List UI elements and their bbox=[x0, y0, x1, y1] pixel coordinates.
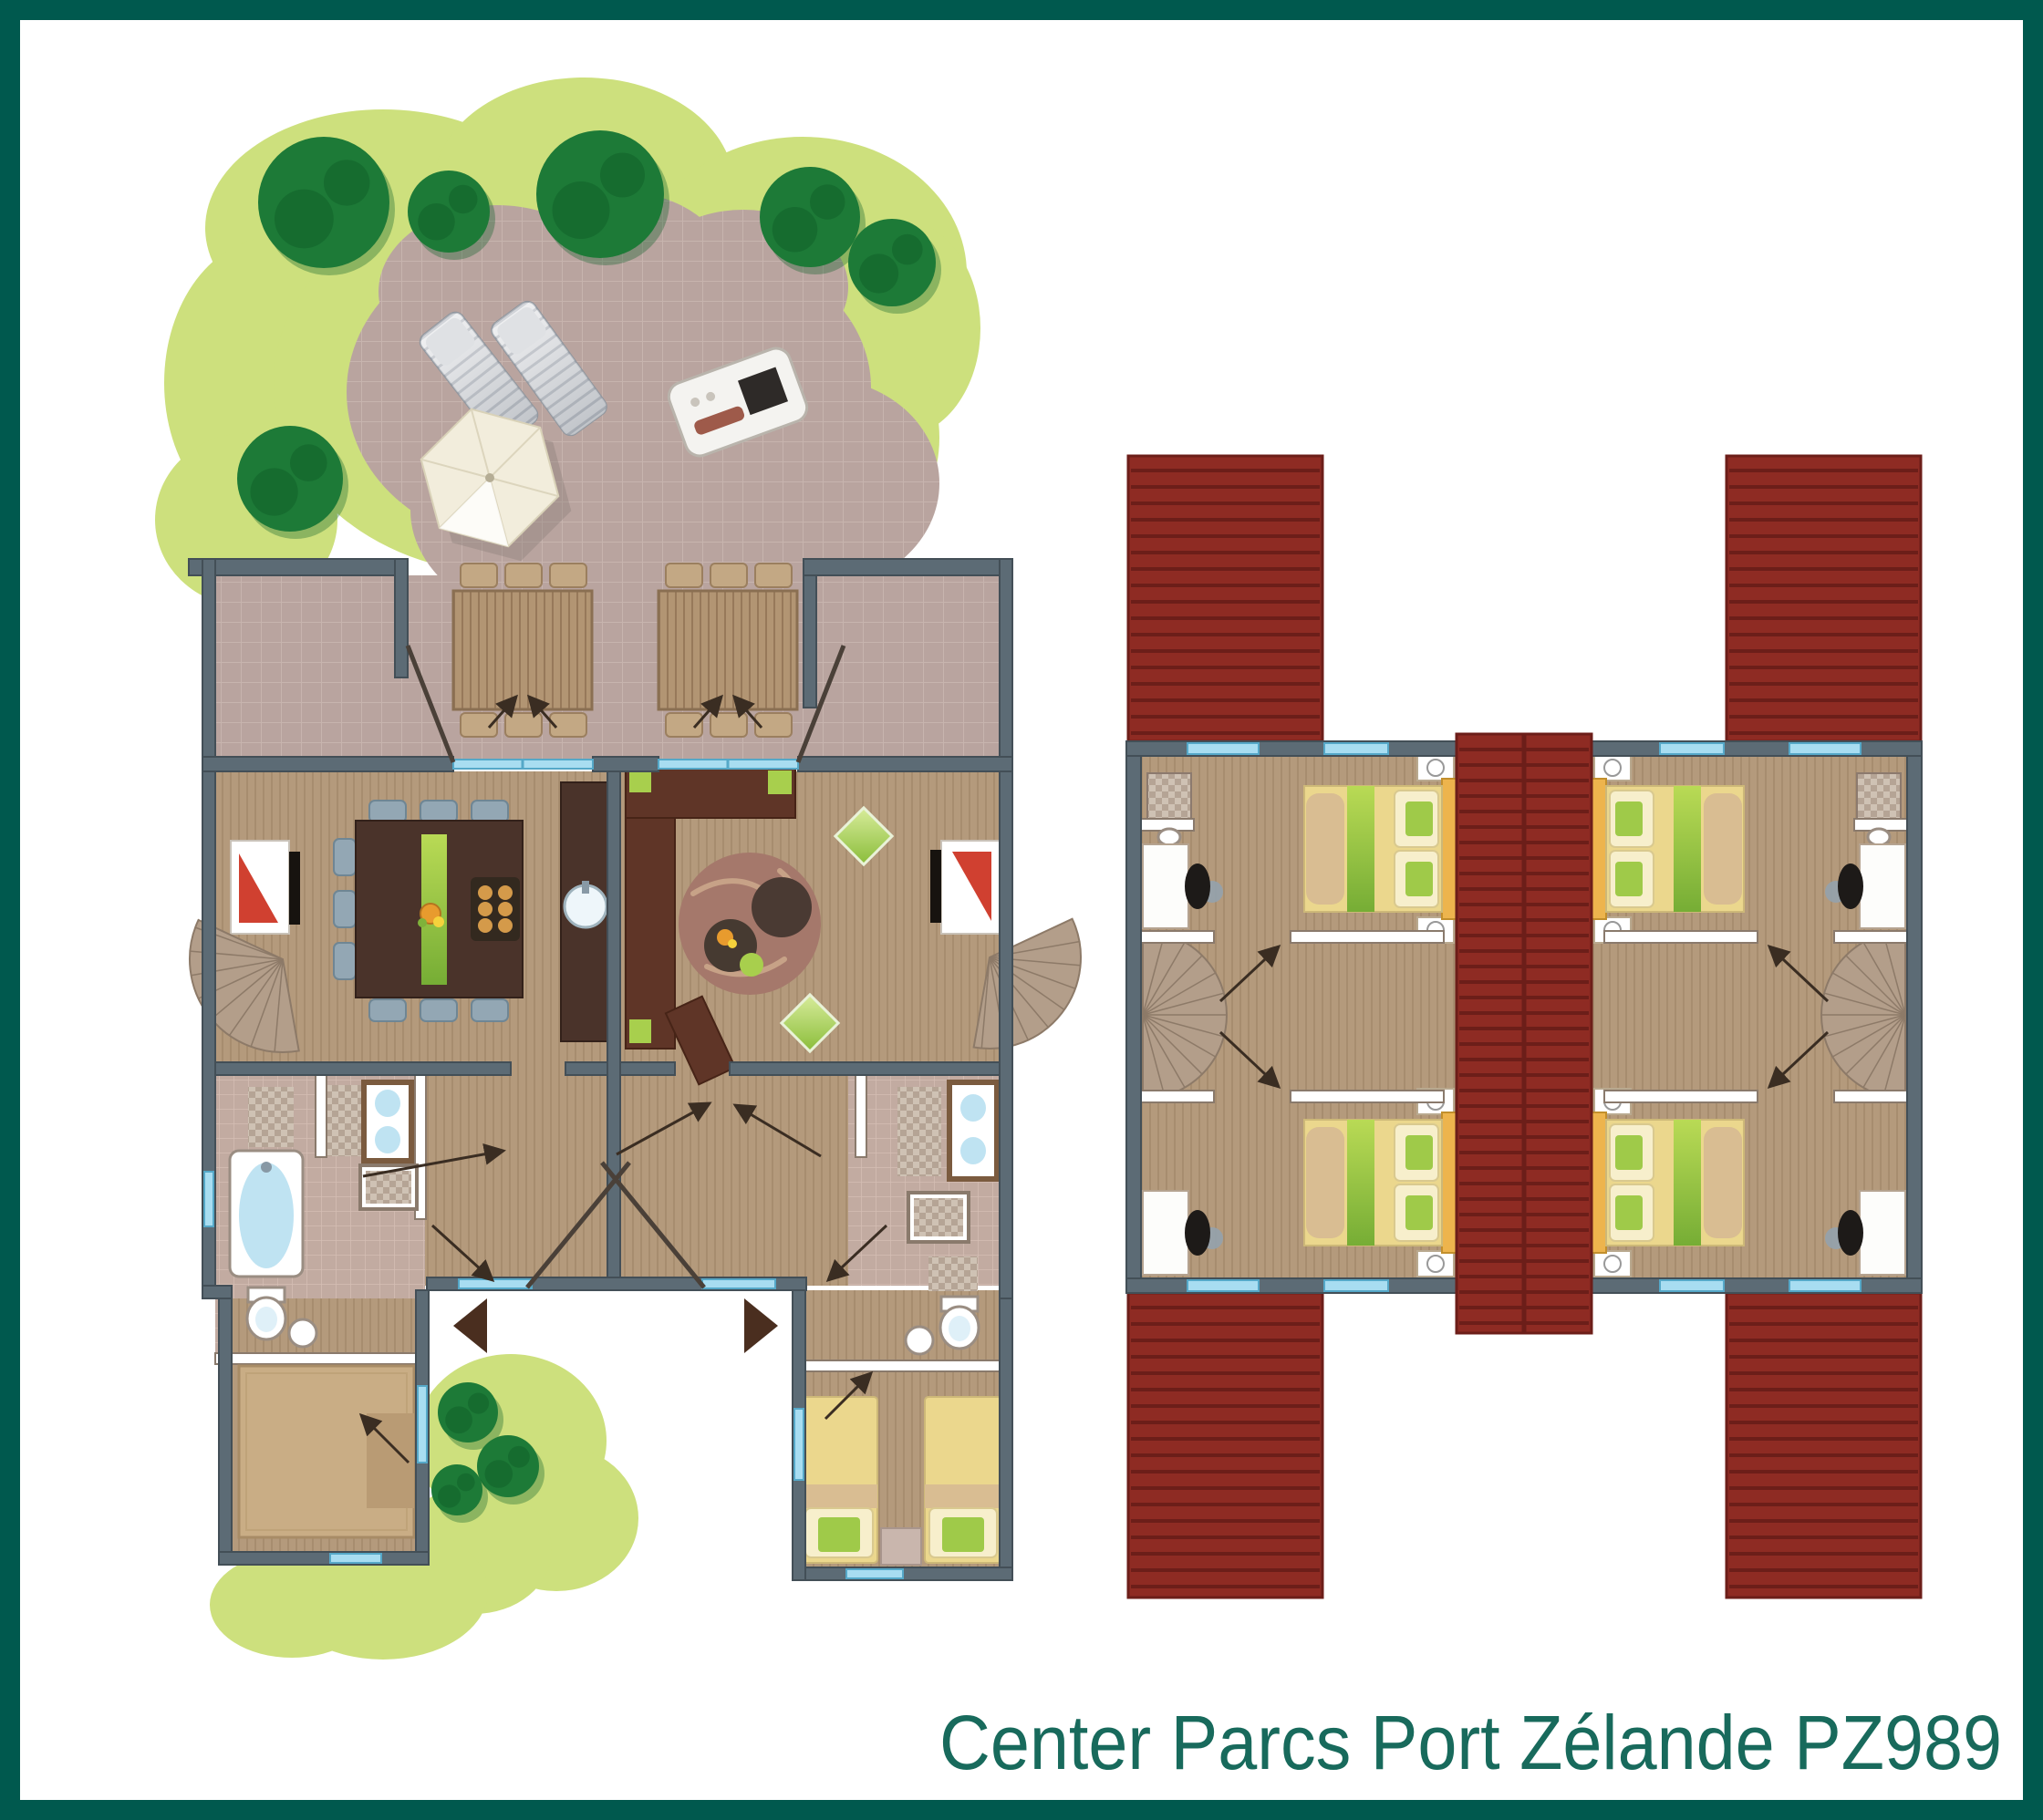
floor-plan-figure: Center Parcs Port Zélande PZ989 bbox=[0, 0, 2043, 1820]
nightstand bbox=[881, 1528, 921, 1565]
window bbox=[459, 1279, 532, 1288]
rug bbox=[679, 853, 821, 995]
picnic-table-icon bbox=[659, 564, 797, 737]
roof bbox=[1128, 456, 1322, 741]
single-bed-icon bbox=[801, 1397, 877, 1563]
caption: Center Parcs Port Zélande PZ989 bbox=[939, 1700, 2002, 1785]
door bbox=[418, 1386, 427, 1463]
roof bbox=[1727, 1293, 1921, 1598]
roof bbox=[1128, 1293, 1322, 1598]
fireplace-icon bbox=[930, 841, 1000, 934]
fireplace-icon bbox=[231, 841, 300, 934]
roof bbox=[1727, 456, 1921, 741]
entrance-arrow-icon bbox=[744, 1298, 778, 1353]
toilet-icon bbox=[940, 1297, 979, 1349]
toilet-icon bbox=[247, 1287, 285, 1339]
window bbox=[204, 1172, 213, 1226]
ground-floor-plan bbox=[155, 78, 1081, 1660]
floorplan-page: Center Parcs Port Zélande PZ989 bbox=[0, 0, 2043, 1820]
bath-mat bbox=[897, 1087, 941, 1176]
single-bed-icon bbox=[925, 1397, 1001, 1563]
kitchen-island bbox=[561, 782, 610, 1041]
stairwell-roof bbox=[1457, 734, 1592, 1333]
sink-icon bbox=[289, 1319, 316, 1347]
window bbox=[846, 1569, 903, 1578]
coffee-table-icon bbox=[752, 877, 812, 937]
window bbox=[702, 1279, 775, 1288]
hob-icon bbox=[471, 877, 520, 941]
window bbox=[330, 1554, 381, 1563]
entrance-arrow-icon bbox=[453, 1298, 487, 1353]
upper-floor-plan bbox=[1126, 456, 1922, 1598]
bathtub-icon bbox=[230, 1151, 303, 1277]
sink-icon bbox=[906, 1327, 933, 1354]
picnic-table-icon bbox=[453, 564, 592, 737]
bath-mat bbox=[248, 1087, 294, 1147]
bedroom-left-wing bbox=[239, 1366, 414, 1537]
shower bbox=[908, 1193, 969, 1242]
dining-area bbox=[334, 801, 523, 1021]
window bbox=[794, 1409, 804, 1480]
